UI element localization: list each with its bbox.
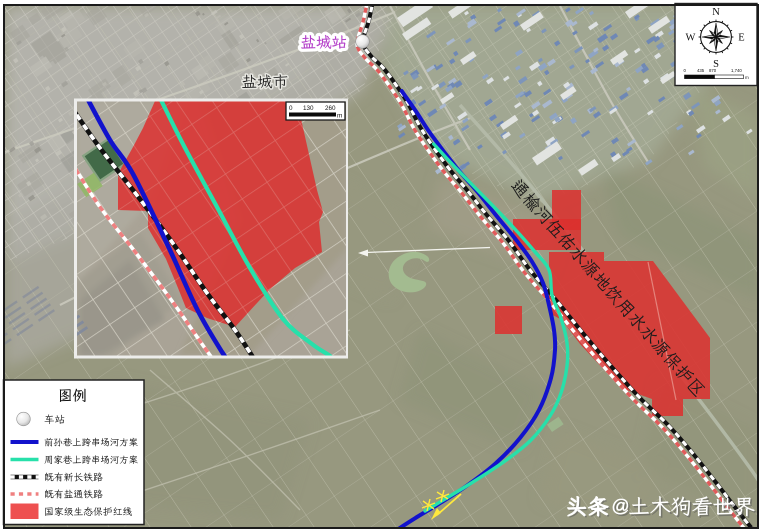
svg-text:130: 130 — [303, 105, 314, 112]
svg-text:m: m — [337, 113, 342, 120]
svg-text:1,740: 1,740 — [731, 68, 742, 73]
svg-text:E: E — [738, 33, 744, 44]
svg-text:0: 0 — [289, 105, 293, 112]
svg-text:435: 435 — [697, 68, 705, 73]
svg-text:W: W — [686, 33, 696, 44]
svg-text:870: 870 — [709, 68, 717, 73]
svg-text:N: N — [712, 7, 720, 18]
svg-text:260: 260 — [325, 105, 336, 112]
svg-text:m: m — [745, 75, 749, 80]
